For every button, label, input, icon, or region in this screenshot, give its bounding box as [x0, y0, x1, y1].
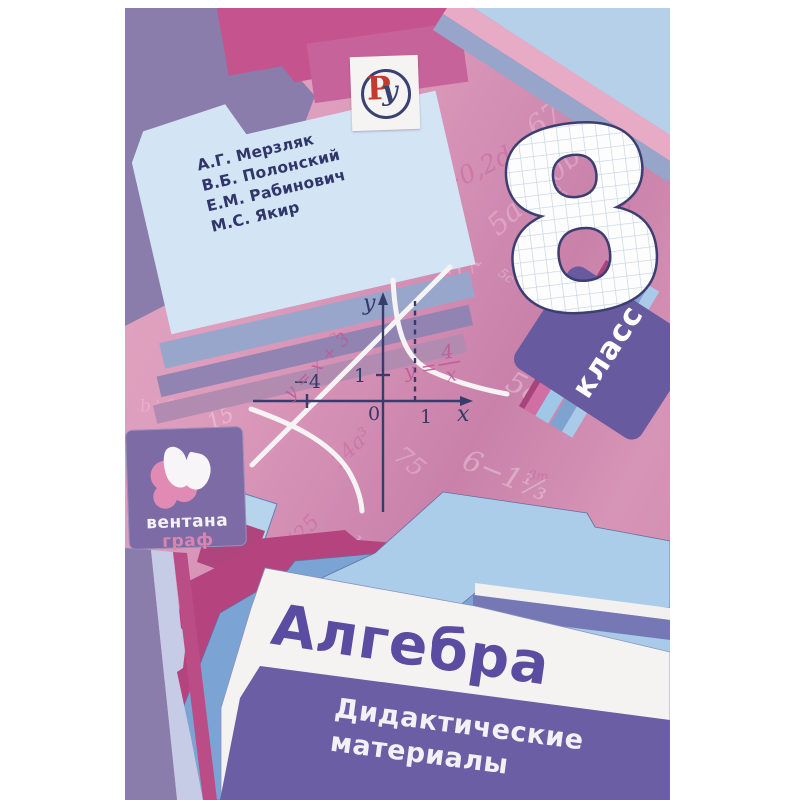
y-tick-1-label: 1 — [354, 365, 366, 387]
origin-label: 0 — [368, 403, 380, 425]
ventana-graf-logo: вентана граф — [125, 426, 247, 550]
x-tick-1-label: 1 — [420, 406, 432, 428]
x-axis-label: х — [457, 402, 470, 427]
publisher-badge: Р у — [350, 55, 421, 131]
badge-letter-u: у — [381, 76, 398, 108]
publisher-name-line2: граф — [129, 529, 248, 553]
hyperbola-denominator: x — [444, 363, 459, 387]
y-axis-label: у — [362, 291, 376, 316]
graph-hyperbola-branch-3 — [251, 409, 362, 511]
hyperbola-equation-lhs: y = — [402, 356, 439, 384]
book-cover: 3a²−2b√(x+2)14a³21a⁴67·9010b²(a−b)²3m=−3… — [125, 8, 670, 800]
book-cover-photo: 3a²−2b√(x+2)14a³21a⁴67·9010b²(a−b)²3m=−3… — [0, 0, 800, 800]
logo-petal-icon — [153, 484, 178, 509]
